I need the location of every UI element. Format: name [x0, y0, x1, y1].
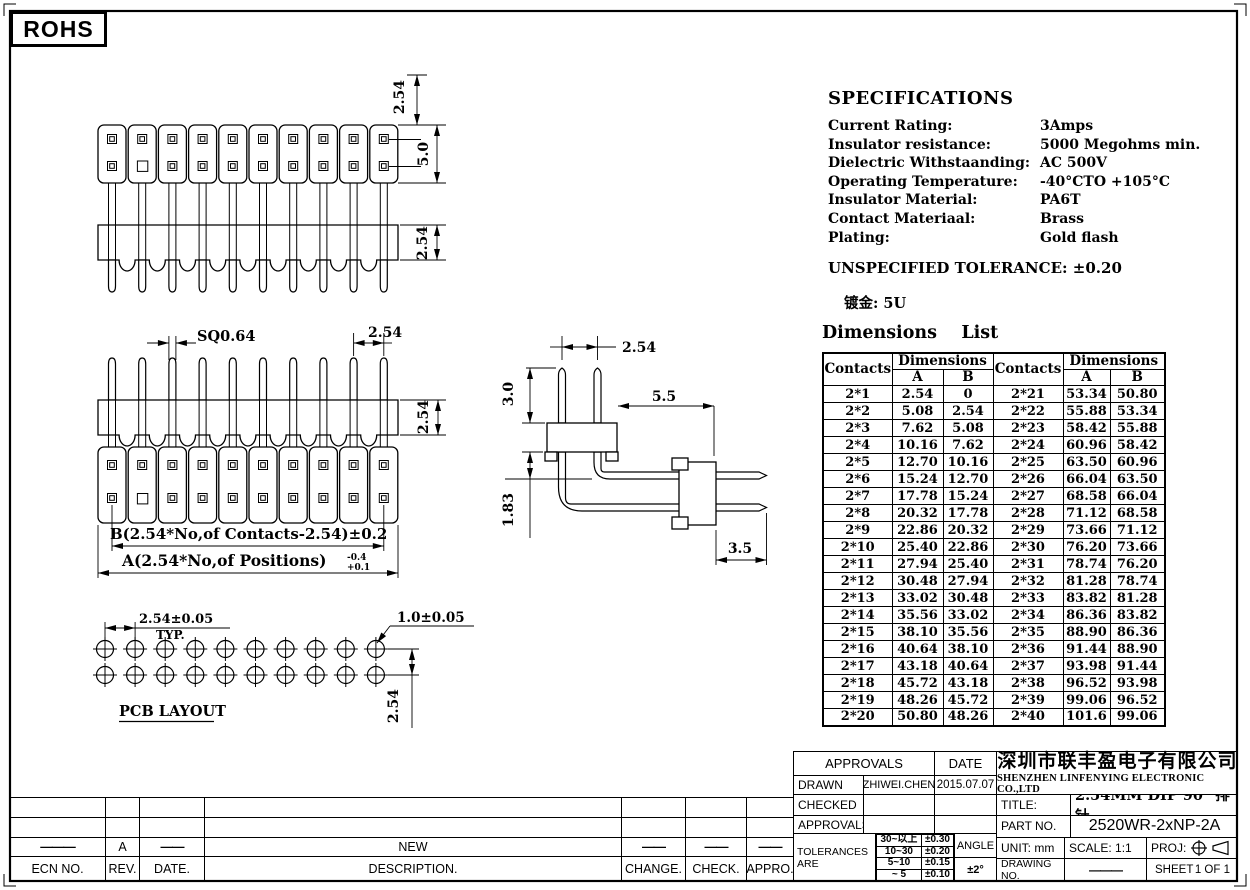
table-cell: 60.96 [1110, 454, 1165, 471]
table-cell: 22.86 [892, 522, 943, 539]
rev-ecn-value: ——— [10, 838, 106, 857]
table-cell: 27.94 [943, 573, 993, 590]
sq-dim-label: SQ0.64 [197, 328, 255, 345]
table-row: 2*1845.7243.182*3896.5293.98 [823, 675, 1165, 692]
pcb-layout-drawing: 2.54±0.05 TYP. 1.0±0.05 2.54 PCB LAYOUT [93, 610, 474, 728]
table-cell: 2*22 [993, 403, 1063, 420]
rev-header-appro: APPRO. [747, 857, 793, 882]
pcb-pitch-dim: 2.54±0.05 [139, 612, 213, 627]
spec-value: 5000 Megohms min. [1040, 136, 1230, 155]
col-header-dimensions: Dimensions [892, 353, 993, 370]
table-cell: 2*6 [823, 471, 892, 488]
dimensions-list-section: Dimensions List Contacts Dimensions Cont… [822, 323, 1168, 727]
revision-table: ——— A —— NEW —— —— —— ECN NO. REV. DATE.… [10, 797, 793, 881]
col-header-contacts: Contacts [993, 353, 1063, 386]
table-cell: 2*23 [993, 420, 1063, 437]
table-cell: 2*2 [823, 403, 892, 420]
header-body-bottom-view [98, 447, 398, 523]
table-cell: 2*12 [823, 573, 892, 590]
col-header-b: B [1110, 370, 1165, 386]
specifications-title: SPECIFICATIONS [828, 88, 1230, 109]
third-angle-projection-icon [1190, 839, 1232, 857]
table-row: 2*512.7010.162*2563.5060.96 [823, 454, 1165, 471]
a-formula-label: A(2.54*No,of Positions) [121, 551, 326, 570]
pin1-marker [137, 494, 147, 504]
unit-label: UNIT: mm [997, 838, 1065, 859]
table-cell: 2*39 [993, 692, 1063, 709]
table-cell: 2.54 [943, 403, 993, 420]
rev-header-description: DESCRIPTION. [205, 857, 622, 882]
angle-label: ANGLE [955, 834, 996, 858]
table-row: 2*1333.0230.482*3383.8281.28 [823, 590, 1165, 607]
company-cell: 深圳市联丰盈电子有限公司 SHENZHEN LINFENYING ELECTRO… [997, 752, 1238, 795]
table-cell: 2*32 [993, 573, 1063, 590]
specifications-block: SPECIFICATIONS Current Rating: 3Amps Ins… [828, 88, 1230, 313]
table-cell: 53.34 [1063, 386, 1110, 403]
title-value: 2.54MM DIP 90° 排针 [1071, 795, 1238, 815]
pin1-marker [137, 161, 147, 171]
rev-empty-cell [140, 818, 205, 838]
rev-header-change: CHANGE. [622, 857, 686, 882]
table-cell: 88.90 [1063, 624, 1110, 641]
table-row: 2*410.167.622*2460.9658.42 [823, 437, 1165, 454]
rev-empty-cell [205, 818, 622, 838]
base-dim-label: 2.54 [416, 400, 432, 434]
table-cell: 2*21 [993, 386, 1063, 403]
table-cell: ±0.30 [921, 835, 953, 847]
table-cell: 10.16 [892, 437, 943, 454]
table-cell: 2*36 [993, 641, 1063, 658]
table-row: 2*37.625.082*2358.4255.88 [823, 420, 1165, 437]
table-cell: 33.02 [892, 590, 943, 607]
table-cell: 66.04 [1110, 488, 1165, 505]
title-block: APPROVALS DATE DRAWN ZHIWEI.CHEN 2015.07… [793, 751, 1238, 881]
table-cell: ±0.20 [921, 846, 953, 858]
table-cell: 2.54 [892, 386, 943, 403]
rohs-badge: ROHS [10, 11, 107, 47]
table-cell: 76.20 [1110, 556, 1165, 573]
table-cell: 2*28 [993, 505, 1063, 522]
table-row: 2*1230.4827.942*3281.2878.74 [823, 573, 1165, 590]
table-cell: 33.02 [943, 607, 993, 624]
table-cell: 101.6 [1063, 709, 1110, 726]
table-cell: 7.62 [892, 420, 943, 437]
table-row: 2*1025.4022.862*3076.2073.66 [823, 539, 1165, 556]
table-cell: 93.98 [1063, 658, 1110, 675]
title-label: TITLE: [997, 795, 1071, 815]
table-cell: 48.26 [943, 709, 993, 726]
table-cell: 15.24 [892, 471, 943, 488]
spec-row: Insulator Material: PA6T [828, 191, 1230, 210]
side-length-dim: 5.5 [652, 389, 676, 405]
table-cell: 2*8 [823, 505, 892, 522]
side-view-drawing: 2.54 3.0 5.5 1.83 3.5 [501, 336, 767, 565]
rev-empty-cell [622, 818, 686, 838]
table-cell: 99.06 [1110, 709, 1165, 726]
table-cell: 71.12 [1063, 505, 1110, 522]
rev-appro-value: —— [747, 838, 793, 857]
sheet-value: 1 OF 1 [1195, 864, 1230, 876]
table-cell: 2*27 [993, 488, 1063, 505]
spec-value: AC 500V [1040, 154, 1230, 173]
table-cell: 73.66 [1063, 522, 1110, 539]
unspecified-tolerance-note: UNSPECIFIED TOLERANCE: ±0.20 [828, 259, 1230, 277]
table-cell: 50.80 [1110, 386, 1165, 403]
rev-header-date: DATE. [140, 857, 205, 882]
pcb-layout-caption: PCB LAYOUT [119, 703, 226, 720]
table-cell: 48.26 [892, 692, 943, 709]
spec-value: 3Amps [1040, 117, 1230, 136]
table-cell: 73.66 [1110, 539, 1165, 556]
spec-label: Contact Materiaal: [828, 210, 1040, 229]
table-cell: 45.72 [943, 692, 993, 709]
table-cell: 2*10 [823, 539, 892, 556]
spec-row: Operating Temperature: -40°CTO +105°C [828, 173, 1230, 192]
spec-value: Gold flash [1040, 229, 1230, 248]
bent-pin-lower [559, 452, 767, 511]
part-no-label: PART NO. [997, 816, 1071, 837]
table-cell: 68.58 [1110, 505, 1165, 522]
table-cell: 2*9 [823, 522, 892, 539]
table-cell: 66.04 [1063, 471, 1110, 488]
spec-row: Contact Materiaal: Brass [828, 210, 1230, 229]
dimensions-table: Contacts Dimensions Contacts Dimensions … [822, 352, 1166, 727]
title-info-section: 深圳市联丰盈电子有限公司 SHENZHEN LINFENYING ELECTRO… [997, 752, 1238, 881]
table-cell: 0 [943, 386, 993, 403]
table-cell: 2*13 [823, 590, 892, 607]
table-cell: 40.64 [943, 658, 993, 675]
rev-empty-cell [747, 798, 793, 818]
angle-cell: ANGLE ±2° [954, 834, 996, 881]
table-row: 2*1127.9425.402*3178.7476.20 [823, 556, 1165, 573]
table-row: 2*922.8620.322*2973.6671.12 [823, 522, 1165, 539]
spec-value: -40°CTO +105°C [1040, 173, 1230, 192]
table-cell: 38.10 [943, 641, 993, 658]
spec-label: Insulator resistance: [828, 136, 1040, 155]
table-row: ~ 5±0.10 [877, 869, 954, 881]
table-cell: 15.24 [943, 488, 993, 505]
side-view-dimensions [505, 336, 767, 565]
table-cell: 2*5 [823, 454, 892, 471]
side-tail-dim: 3.5 [728, 541, 752, 557]
table-cell: 99.06 [1063, 692, 1110, 709]
table-cell: 12.70 [892, 454, 943, 471]
front-base-dim-label: 2.54 [415, 226, 431, 260]
col-header-dimensions: Dimensions [1063, 353, 1165, 370]
vertical-pin [559, 368, 566, 423]
table-cell: 60.96 [1063, 437, 1110, 454]
table-cell: 2*15 [823, 624, 892, 641]
rev-description-value: NEW [205, 838, 622, 857]
table-cell: 43.18 [943, 675, 993, 692]
scale-label: SCALE: 1:1 [1065, 838, 1147, 859]
tolerances-label: TOLERANCES ARE [794, 834, 876, 881]
table-cell: 58.42 [1063, 420, 1110, 437]
header-base-side-view [98, 183, 398, 292]
table-cell: 45.72 [892, 675, 943, 692]
table-cell: 30.48 [892, 573, 943, 590]
table-cell: 2*26 [993, 471, 1063, 488]
proj-label: PROJ: [1151, 841, 1186, 855]
rev-header-ecn: ECN NO. [10, 857, 106, 882]
sheet-cell: SHEET 1 OF 1 [1147, 859, 1238, 881]
table-cell: 10~30 [877, 846, 922, 858]
rev-check-value: —— [686, 838, 747, 857]
rev-empty-cell [140, 798, 205, 818]
table-cell: 86.36 [1063, 607, 1110, 624]
insulator-strip [98, 400, 398, 446]
side-pitch-dim: 2.54 [622, 340, 656, 356]
table-row: 30~以上±0.30 [877, 835, 954, 847]
table-cell: ±0.10 [921, 869, 953, 881]
table-cell: 2*37 [993, 658, 1063, 675]
table-cell: 63.50 [1110, 471, 1165, 488]
rev-empty-cell [747, 818, 793, 838]
pcb-holes [93, 637, 388, 687]
pcb-typ-label: TYP. [156, 628, 185, 642]
table-cell: 12.70 [943, 471, 993, 488]
pcb-hole-dim: 1.0±0.05 [397, 610, 465, 626]
checked-label: CHECKED [794, 795, 864, 815]
col-header-contacts: Contacts [823, 353, 892, 386]
table-cell: 63.50 [1063, 454, 1110, 471]
a-tol-lower: +0.1 [347, 563, 370, 573]
table-row: 2*25.082.542*2255.8853.34 [823, 403, 1165, 420]
drawing-no-value: ——— [1065, 859, 1147, 881]
sheet-label: SHEET [1155, 864, 1193, 876]
table-cell: 25.40 [943, 556, 993, 573]
table-cell: 2*35 [993, 624, 1063, 641]
table-row: 2*1743.1840.642*3793.9891.44 [823, 658, 1165, 675]
table-cell: 5~10 [877, 858, 922, 870]
table-cell: 55.88 [1063, 403, 1110, 420]
table-cell: 68.58 [1063, 488, 1110, 505]
table-cell: 88.90 [1110, 641, 1165, 658]
table-cell: 81.28 [1110, 590, 1165, 607]
approvals-header: APPROVALS [794, 752, 935, 775]
table-cell: ±0.15 [921, 858, 953, 870]
table-cell: 2*31 [993, 556, 1063, 573]
rev-empty-cell [10, 798, 106, 818]
table-cell: 2*40 [993, 709, 1063, 726]
table-cell: 96.52 [1110, 692, 1165, 709]
side-offset-dim: 1.83 [501, 493, 517, 527]
drawing-sheet: 2.54 5.0 2.54 [0, 0, 1250, 890]
table-row: 2*1640.6438.102*3691.4488.90 [823, 641, 1165, 658]
table-cell: 76.20 [1063, 539, 1110, 556]
drawn-label: DRAWN [794, 776, 864, 794]
table-cell: 2*1 [823, 386, 892, 403]
table-cell: 27.94 [892, 556, 943, 573]
rev-empty-cell [10, 818, 106, 838]
side-insulator [545, 423, 618, 461]
b-formula-label: B(2.54*No,of Contacts-2.54)±0.2 [110, 525, 387, 543]
table-cell: 2*33 [993, 590, 1063, 607]
rev-empty-cell [106, 798, 140, 818]
spec-label: Plating: [828, 229, 1040, 248]
front-pin-dim-label: 2.54 [392, 80, 408, 114]
rev-header-check: CHECK. [686, 857, 747, 882]
table-cell: 78.74 [1110, 573, 1165, 590]
table-cell: 35.56 [943, 624, 993, 641]
angle-value: ±2° [955, 858, 996, 881]
checked-name [864, 795, 935, 815]
table-cell: 2*34 [993, 607, 1063, 624]
a-tol-upper: -0.4 [347, 553, 366, 563]
table-cell: 5.08 [943, 420, 993, 437]
checked-date [935, 795, 996, 815]
table-cell: 86.36 [1110, 624, 1165, 641]
spec-row: Plating: Gold flash [828, 229, 1230, 248]
dimensions-list-title: Dimensions List [822, 323, 1168, 343]
table-cell: 2*3 [823, 420, 892, 437]
table-cell: 50.80 [892, 709, 943, 726]
table-cell: 25.40 [892, 539, 943, 556]
company-name-cn: 深圳市联丰盈电子有限公司 [997, 751, 1237, 773]
rev-rev-value: A [106, 838, 140, 857]
table-cell: 2*11 [823, 556, 892, 573]
table-cell: 38.10 [892, 624, 943, 641]
gold-plating-note: 镀金: 5U [828, 292, 1230, 313]
table-cell: 2*20 [823, 709, 892, 726]
col-header-a: A [892, 370, 943, 386]
front-view-drawing: 2.54 5.0 2.54 [98, 75, 446, 292]
rev-empty-cell [106, 818, 140, 838]
table-cell: 17.78 [892, 488, 943, 505]
table-row: 2*615.2412.702*2666.0463.50 [823, 471, 1165, 488]
table-cell: 2*17 [823, 658, 892, 675]
table-cell: 58.42 [1110, 437, 1165, 454]
approvals-date [935, 816, 996, 833]
table-cell: 10.16 [943, 454, 993, 471]
table-cell: 2*19 [823, 692, 892, 709]
table-row: 5~10±0.15 [877, 858, 954, 870]
header-body-top-view [98, 125, 398, 183]
table-cell: 2*25 [993, 454, 1063, 471]
back-view-pins [109, 358, 388, 400]
table-row: 2*1538.1035.562*3588.9086.36 [823, 624, 1165, 641]
table-row: 2*717.7815.242*2768.5866.04 [823, 488, 1165, 505]
approvals-name [864, 816, 935, 833]
table-row: 2*1435.5633.022*3486.3683.82 [823, 607, 1165, 624]
col-header-b: B [943, 370, 993, 386]
table-cell: 2*14 [823, 607, 892, 624]
table-cell: 30.48 [943, 590, 993, 607]
rev-empty-cell [686, 798, 747, 818]
pcb-wall-section [672, 458, 716, 529]
table-row: 2*12.5402*2153.3450.80 [823, 386, 1165, 403]
drawn-date: 2015.07.07 [935, 776, 996, 794]
table-cell: 2*4 [823, 437, 892, 454]
table-cell: 2*16 [823, 641, 892, 658]
pcb-row-dim: 2.54 [386, 689, 402, 723]
table-cell: 53.34 [1110, 403, 1165, 420]
tolerance-table: 30~以上±0.3010~30±0.205~10±0.15~ 5±0.10 [876, 834, 954, 881]
table-row: 2*2050.8048.262*40101.699.06 [823, 709, 1165, 726]
projection-cell: PROJ: [1147, 838, 1238, 859]
pitch-dim-label: 2.54 [368, 325, 402, 341]
table-cell: 2*30 [993, 539, 1063, 556]
part-no-value: 2520WR-2xNP-2A [1071, 816, 1238, 837]
table-cell: 91.44 [1110, 658, 1165, 675]
table-cell: ~ 5 [877, 869, 922, 881]
table-row: 2*1948.2645.722*3999.0696.52 [823, 692, 1165, 709]
spec-label: Operating Temperature: [828, 173, 1040, 192]
table-row: 10~30±0.20 [877, 846, 954, 858]
date-header: DATE [935, 752, 996, 775]
table-cell: 96.52 [1063, 675, 1110, 692]
table-cell: 55.88 [1110, 420, 1165, 437]
table-cell: 20.32 [892, 505, 943, 522]
table-cell: 2*18 [823, 675, 892, 692]
rev-empty-cell [622, 798, 686, 818]
table-cell: 2*7 [823, 488, 892, 505]
back-view-drawing: SQ0.64 2.54 2.54 B(2.54*No,of Contacts-2… [98, 325, 446, 578]
table-cell: 81.28 [1063, 573, 1110, 590]
table-cell: 22.86 [943, 539, 993, 556]
table-cell: 7.62 [943, 437, 993, 454]
front-body-dim-label: 5.0 [416, 142, 432, 167]
drawing-no-label: DRAWING NO. [997, 859, 1065, 881]
table-cell: 71.12 [1110, 522, 1165, 539]
spec-row: Dielectric Withstaanding: AC 500V [828, 154, 1230, 173]
spec-value: PA6T [1040, 191, 1230, 210]
approvals-section: APPROVALS DATE DRAWN ZHIWEI.CHEN 2015.07… [794, 752, 997, 881]
table-cell: 91.44 [1063, 641, 1110, 658]
table-cell: 2*29 [993, 522, 1063, 539]
vertical-pin [594, 368, 601, 423]
spec-row: Current Rating: 3Amps [828, 117, 1230, 136]
table-cell: 17.78 [943, 505, 993, 522]
col-header-a: A [1063, 370, 1110, 386]
table-cell: 5.08 [892, 403, 943, 420]
spec-label: Current Rating: [828, 117, 1040, 136]
table-cell: 83.82 [1063, 590, 1110, 607]
table-cell: 30~以上 [877, 835, 922, 847]
rev-date-value: —— [140, 838, 205, 857]
table-cell: 2*38 [993, 675, 1063, 692]
spec-row: Insulator resistance: 5000 Megohms min. [828, 136, 1230, 155]
approvals-label: APPROVALS [794, 816, 864, 833]
rev-empty-cell [686, 818, 747, 838]
rev-empty-cell [205, 798, 622, 818]
rev-change-value: —— [622, 838, 686, 857]
table-cell: 93.98 [1110, 675, 1165, 692]
spec-label: Insulator Material: [828, 191, 1040, 210]
table-cell: 35.56 [892, 607, 943, 624]
table-cell: 40.64 [892, 641, 943, 658]
company-name-en: SHENZHEN LINFENYING ELECTRONIC CO.,LTD [997, 773, 1238, 795]
table-cell: 2*24 [993, 437, 1063, 454]
table-cell: 43.18 [892, 658, 943, 675]
spec-value: Brass [1040, 210, 1230, 229]
table-cell: 20.32 [943, 522, 993, 539]
spec-label: Dielectric Withstaanding: [828, 154, 1040, 173]
drawn-name: ZHIWEI.CHEN [864, 776, 935, 794]
table-cell: 83.82 [1110, 607, 1165, 624]
rohs-label: ROHS [23, 16, 93, 43]
rev-header-rev: REV. [106, 857, 140, 882]
table-cell: 78.74 [1063, 556, 1110, 573]
side-height-dim: 3.0 [501, 382, 517, 407]
table-row: 2*820.3217.782*2871.1268.58 [823, 505, 1165, 522]
